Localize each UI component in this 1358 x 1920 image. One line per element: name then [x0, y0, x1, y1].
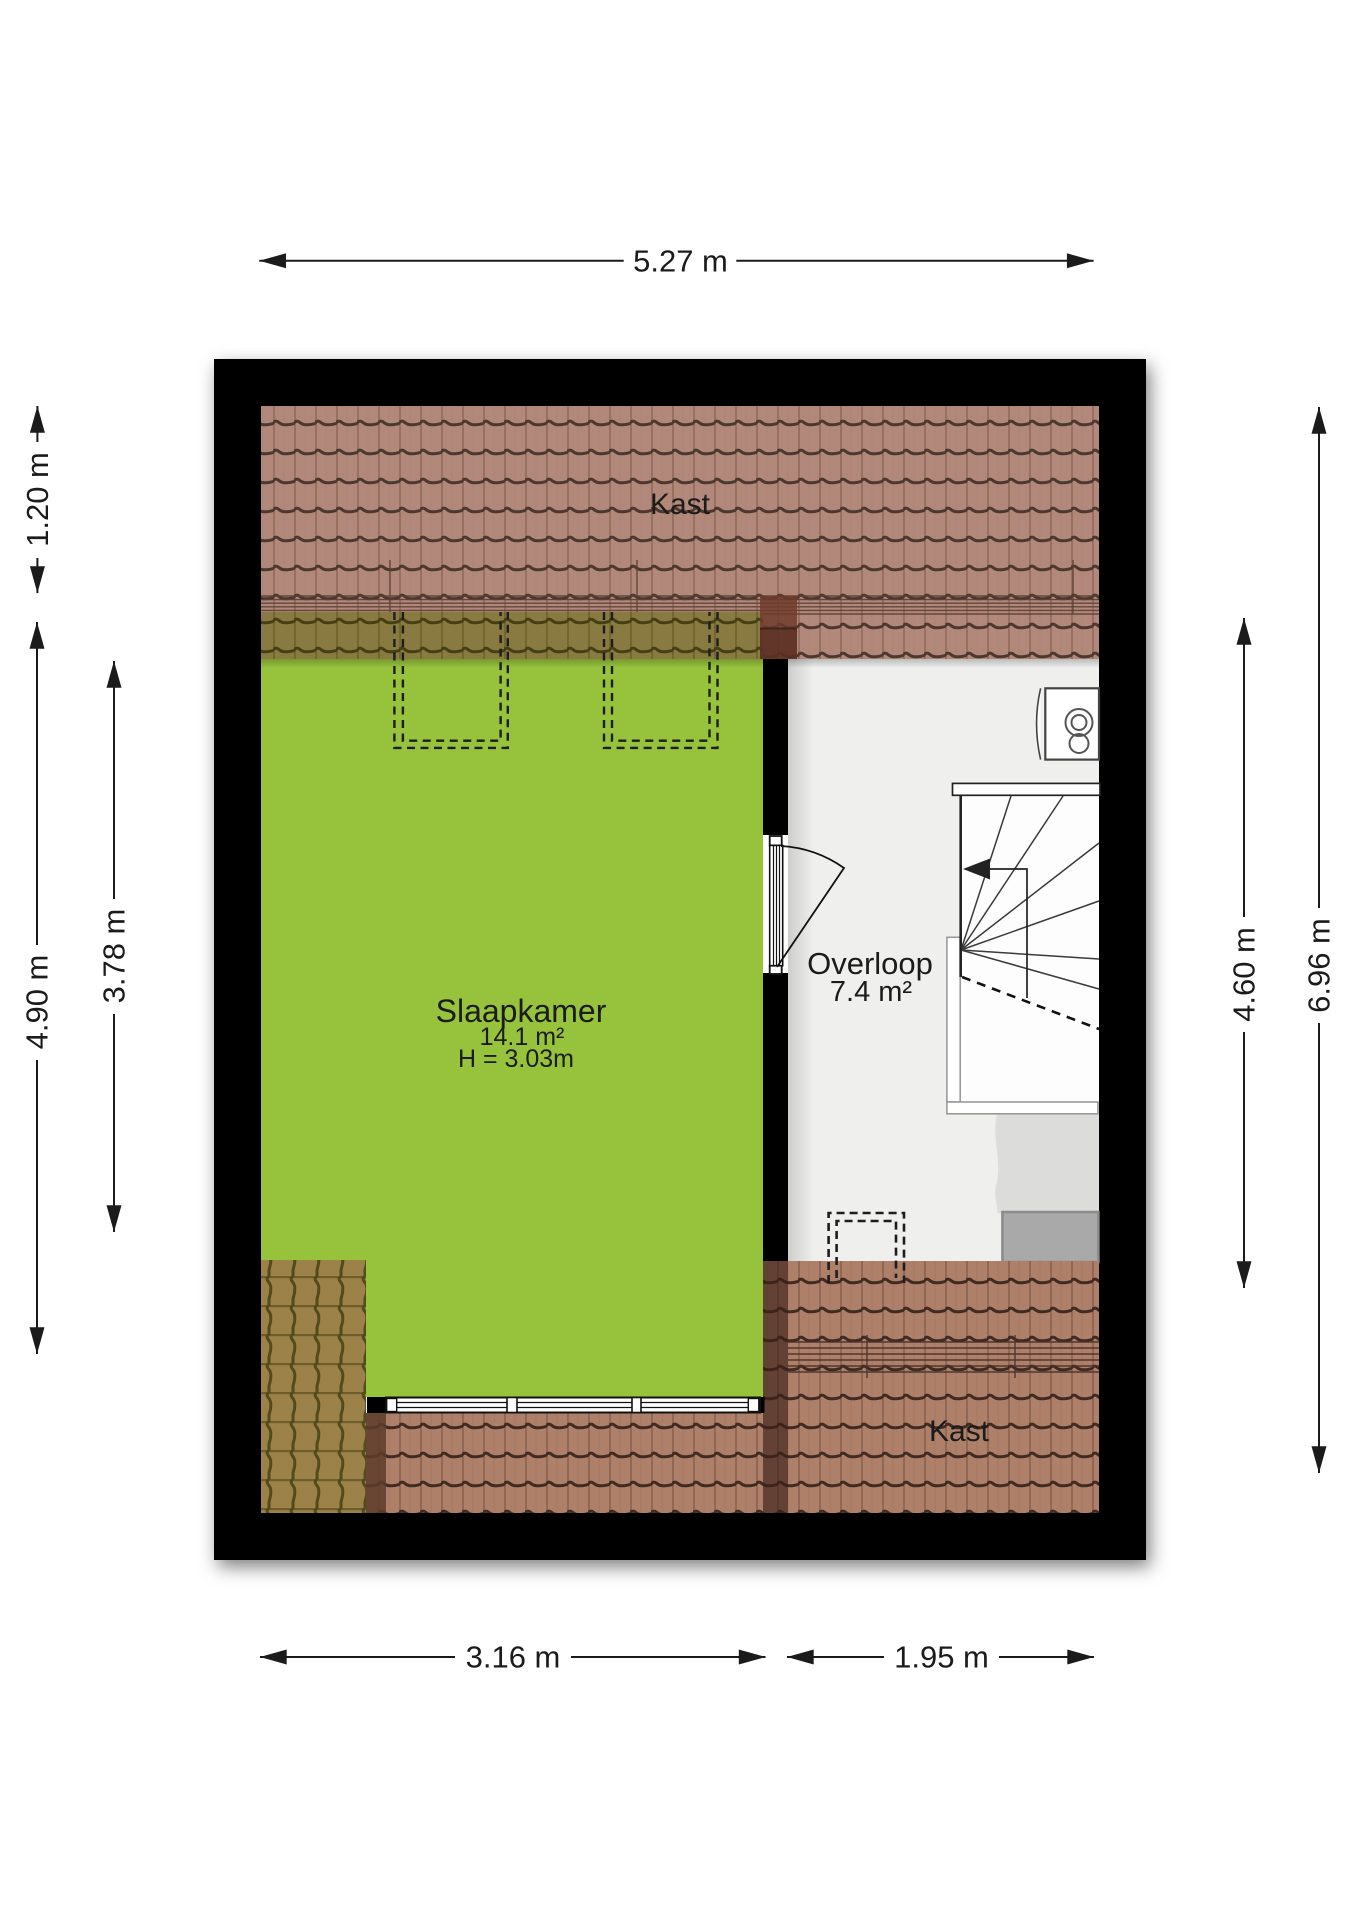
- svg-text:4.60 m: 4.60 m: [1227, 927, 1262, 1022]
- svg-text:5.27 m: 5.27 m: [633, 244, 728, 279]
- svg-text:1.95 m: 1.95 m: [894, 1640, 989, 1675]
- svg-text:7.4 m²: 7.4 m²: [830, 976, 913, 1008]
- svg-text:1.20 m: 1.20 m: [20, 452, 55, 547]
- svg-text:3.16 m: 3.16 m: [466, 1640, 561, 1675]
- svg-text:3.78 m: 3.78 m: [97, 909, 132, 1004]
- svg-text:6.96 m: 6.96 m: [1302, 918, 1337, 1013]
- svg-text:4.90 m: 4.90 m: [20, 955, 55, 1050]
- svg-text:Kast: Kast: [650, 488, 711, 521]
- svg-text:H = 3.03m: H = 3.03m: [458, 1045, 574, 1073]
- svg-text:Kast: Kast: [929, 1415, 990, 1448]
